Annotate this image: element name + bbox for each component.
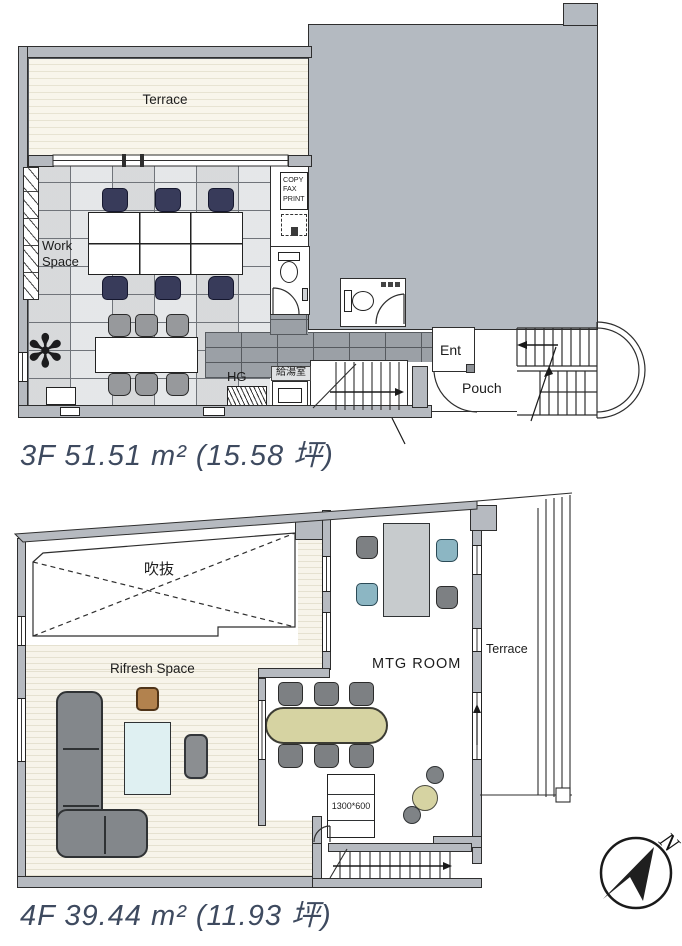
shelf-mark: [388, 282, 393, 287]
area-label-3f: 3F 51.51 m² (15.58 坪): [20, 439, 440, 474]
sofa: [56, 809, 148, 858]
chair: [356, 583, 378, 606]
area-label-4f: 4F 39.44 m² (11.93 坪): [20, 899, 440, 934]
chair: [108, 314, 131, 337]
sink-icon: [278, 388, 302, 403]
meeting-table: [265, 707, 388, 744]
wall: [312, 878, 482, 888]
pillar: [412, 366, 428, 408]
pillar: [466, 364, 475, 373]
window: [472, 628, 482, 652]
chair: [278, 682, 303, 706]
window: [322, 612, 331, 652]
wall: [328, 843, 472, 852]
cushion-divider: [104, 816, 106, 854]
wall: [258, 668, 330, 678]
wall: [18, 46, 312, 58]
toilet-icon: [278, 252, 300, 261]
side-table: [95, 337, 198, 373]
walkway-floor: [298, 518, 322, 670]
hg-hatch: [227, 386, 267, 407]
wall-block: [470, 505, 497, 531]
chair: [155, 276, 181, 300]
chair: [208, 188, 234, 212]
window: [472, 692, 482, 760]
cushion-divider: [63, 805, 99, 807]
chair: [108, 373, 131, 396]
printer-mark: [291, 227, 298, 236]
window: [17, 698, 26, 762]
window: [258, 700, 266, 760]
atrium-void: [33, 533, 295, 636]
floor-plan-page: Terrace Work Space ✻ COPY FAX PRINT HG 給…: [0, 0, 682, 946]
desk: [383, 523, 430, 617]
chair: [102, 188, 128, 212]
work-space-label: Work Space: [42, 238, 98, 269]
wall: [17, 876, 313, 888]
chair: [314, 744, 339, 768]
compass-n-label: N: [653, 827, 682, 859]
wall-block: [295, 516, 323, 540]
chair: [155, 188, 181, 212]
shelf-1300x600: 1300*600: [327, 774, 375, 838]
refresh-space-floor: [262, 820, 312, 876]
wall: [288, 155, 312, 167]
chair: [166, 373, 189, 396]
chair: [135, 373, 158, 396]
hg-label: HG: [227, 369, 247, 385]
chair: [314, 682, 339, 706]
chair: [278, 744, 303, 768]
exterior-staircase: [517, 322, 645, 418]
shelf-divider: [328, 820, 374, 821]
chair: [102, 276, 128, 300]
neighbor-building-bump: [563, 3, 598, 26]
refresh-space-label: Rifresh Space: [110, 661, 195, 677]
compass: N: [601, 827, 682, 908]
chair: [135, 314, 158, 337]
door-gap: [203, 407, 225, 416]
meeting-room-label: MTG ROOM: [372, 656, 461, 673]
stool: [426, 766, 444, 784]
compass-circle: [601, 838, 671, 908]
toilet-bowl-icon: [280, 261, 298, 283]
wall: [28, 155, 54, 167]
toilet-icon: [344, 290, 352, 312]
chair: [436, 586, 458, 609]
shelf-size-label: 1300*600: [328, 801, 374, 812]
toilet-bowl-icon: [352, 291, 374, 311]
door-gap: [60, 407, 80, 416]
ottoman: [136, 687, 159, 711]
void-label: 吹抜: [144, 561, 174, 579]
washbasin-icon: [302, 288, 308, 301]
terrace-label-4f: Terrace: [486, 642, 528, 657]
chair: [349, 682, 374, 706]
terrace-label-3f: Terrace: [120, 92, 210, 108]
staircase-4f: [322, 852, 472, 878]
shelf-mark: [395, 282, 400, 287]
kitchenette-label: 給湯室: [271, 366, 311, 381]
shelving-unit: [23, 167, 39, 300]
chair: [436, 539, 458, 562]
porch-label: Pouch: [462, 380, 502, 397]
wall: [18, 405, 432, 418]
chair: [208, 276, 234, 300]
north-arrow-icon: [603, 847, 654, 901]
shelf-divider: [328, 794, 374, 795]
plant-icon: ✻: [26, 324, 65, 378]
window: [17, 616, 26, 646]
chair: [349, 744, 374, 768]
chair: [166, 314, 189, 337]
window: [472, 545, 482, 575]
corridor-floor: [270, 315, 308, 335]
work-table-cluster: [88, 212, 243, 275]
chair: [356, 536, 378, 559]
coffee-table: [124, 722, 171, 795]
stool: [403, 806, 421, 824]
shelf-mark: [381, 282, 386, 287]
storage-box: [46, 387, 76, 405]
ottoman: [184, 734, 208, 779]
copy-fax-print-box: COPY FAX PRINT: [280, 172, 308, 210]
window: [18, 352, 28, 382]
entrance-label: Ent: [440, 342, 461, 359]
cushion-divider: [63, 748, 99, 750]
window: [322, 556, 331, 592]
